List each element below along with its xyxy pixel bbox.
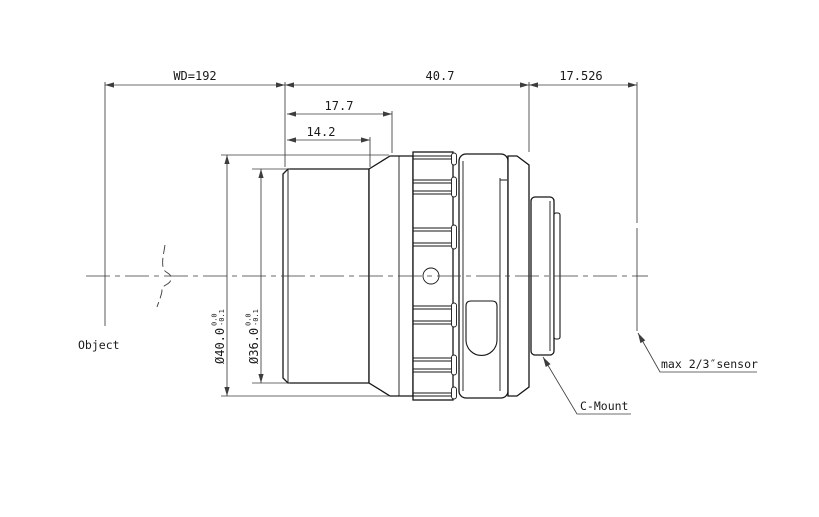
dim-front-barrel-length: 14.2 xyxy=(307,125,336,139)
knurl-bump xyxy=(452,303,457,327)
arrowhead xyxy=(628,82,637,87)
knurl-bump xyxy=(452,225,457,249)
arrowhead xyxy=(258,169,263,178)
arrowhead xyxy=(224,387,229,396)
c-mount-label: C-Mount xyxy=(580,399,628,413)
c-mount-leader-arrowhead xyxy=(541,356,551,367)
arrowhead xyxy=(287,137,296,142)
arrowhead xyxy=(285,82,294,87)
dim-front-diameter: Ø36.0 xyxy=(247,328,261,364)
arrowhead xyxy=(383,111,392,116)
arrowhead xyxy=(258,374,263,383)
arrowhead xyxy=(361,137,370,142)
dim-body-length: 40.7 xyxy=(426,69,455,83)
knurl-bump xyxy=(452,153,457,165)
arrowhead xyxy=(529,82,538,87)
sensor-label: max 2/3″sensor xyxy=(661,357,758,371)
dim-max-diameter-group: Ø40.0 0.0 -0.1 xyxy=(211,309,228,364)
knurl-bump xyxy=(452,177,457,197)
iris-slot xyxy=(466,301,497,355)
dim-front-diameter-group: Ø36.0 0.0 -0.1 xyxy=(245,309,262,364)
dim-working-distance: WD=192 xyxy=(173,69,216,83)
dim-front-section-length: 17.7 xyxy=(325,99,354,113)
knurl-bump xyxy=(452,355,457,375)
lens-technical-drawing: WD=192 40.7 17.526 17.7 14.2 Ø40.0 0.0 -… xyxy=(0,0,819,517)
arrowhead xyxy=(520,82,529,87)
knurl-bump xyxy=(452,387,457,399)
arrowhead xyxy=(224,155,229,164)
dim-max-diameter-tol-lower: -0.1 xyxy=(218,309,226,326)
drawing-canvas: WD=192 40.7 17.526 17.7 14.2 Ø40.0 0.0 -… xyxy=(0,0,819,517)
sensor-leader-arrowhead xyxy=(636,332,646,343)
dim-max-diameter: Ø40.0 xyxy=(213,328,227,364)
object-label: Object xyxy=(78,338,120,352)
arrowhead xyxy=(276,82,285,87)
dim-front-diameter-tol-lower: -0.1 xyxy=(252,309,260,326)
arrowhead xyxy=(105,82,114,87)
arrowhead xyxy=(287,111,296,116)
dim-flange-focal-distance: 17.526 xyxy=(559,69,602,83)
